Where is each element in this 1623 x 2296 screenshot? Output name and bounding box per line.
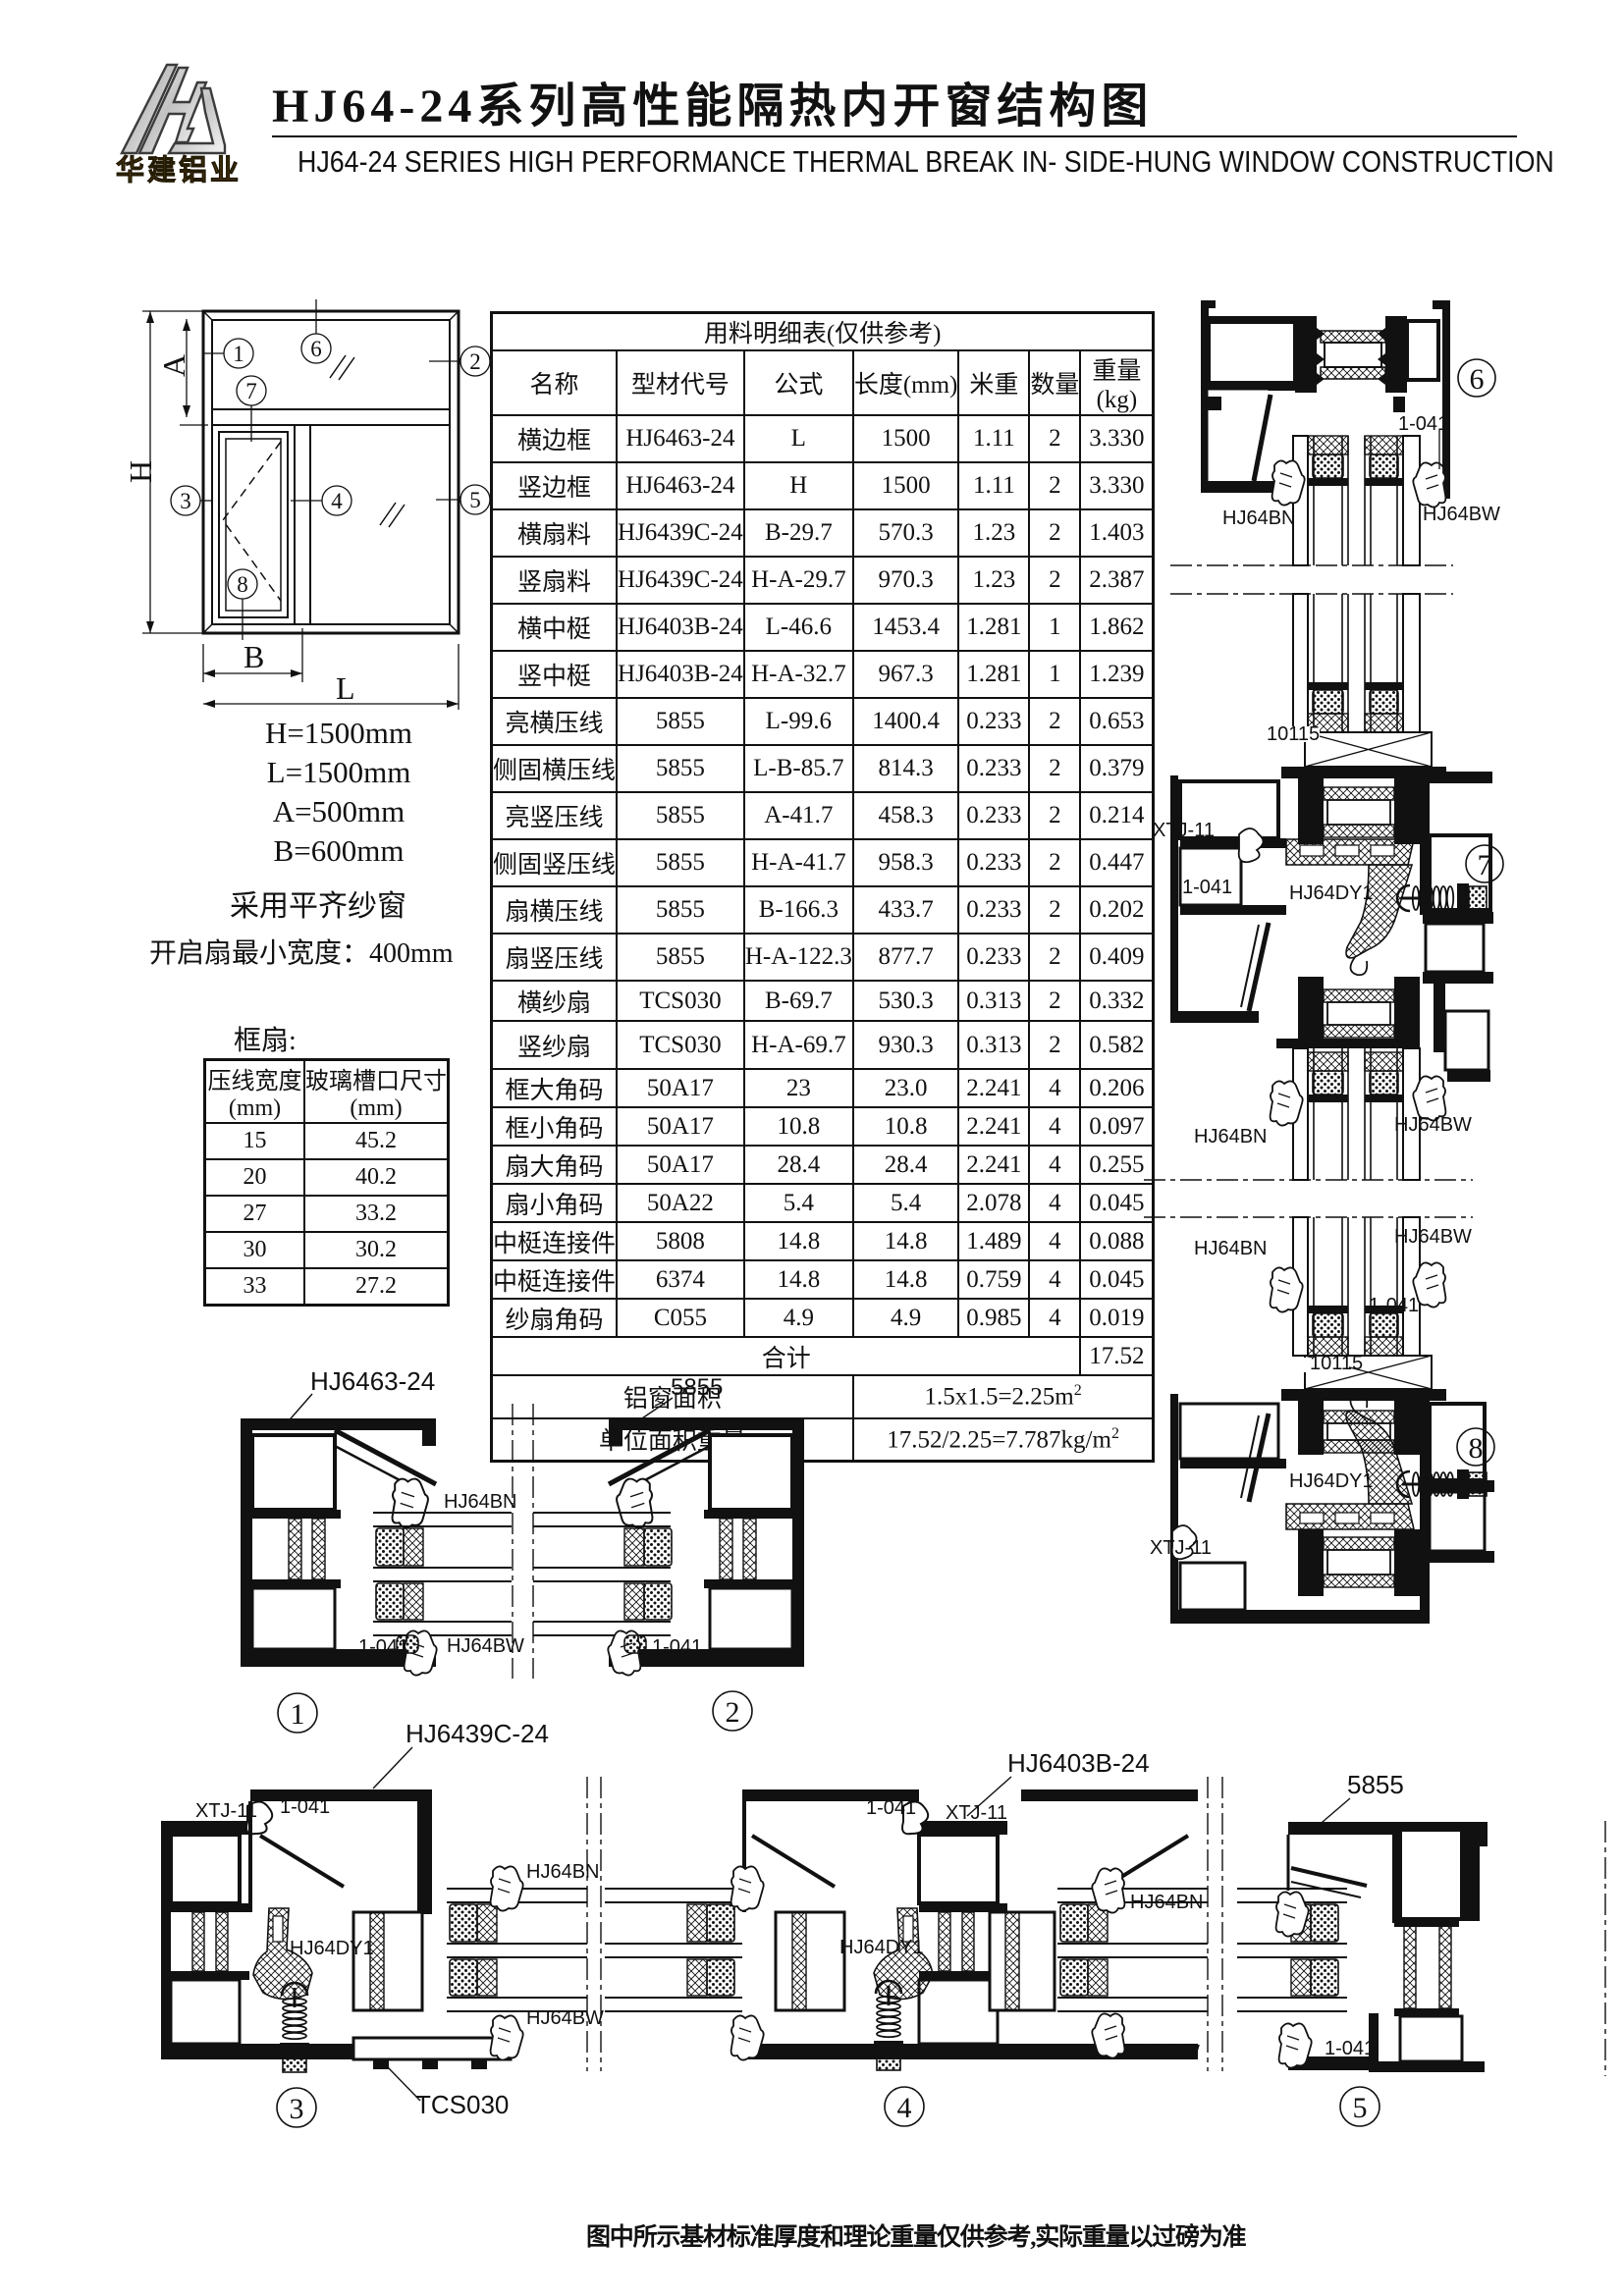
svg-text:HJ64BN: HJ64BN (1194, 1126, 1267, 1148)
svg-text:XTJ-11: XTJ-11 (946, 1802, 1007, 1824)
svg-text:HJ6439C-24: HJ6439C-24 (406, 1719, 549, 1748)
svg-text:1-041: 1-041 (1369, 1295, 1419, 1316)
svg-text:HJ64BN: HJ64BN (526, 1861, 599, 1883)
svg-text:7: 7 (1478, 849, 1492, 881)
svg-text:1: 1 (291, 1698, 305, 1731)
svg-text:1-041: 1-041 (280, 1796, 330, 1818)
svg-text:HJ64BW: HJ64BW (526, 2007, 604, 2029)
svg-text:HJ64DY1: HJ64DY1 (839, 1937, 924, 1958)
svg-text:TCS030: TCS030 (415, 2090, 509, 2119)
svg-text:1-041: 1-041 (866, 1797, 916, 1819)
svg-text:HJ6463-24: HJ6463-24 (310, 1366, 435, 1396)
svg-text:HJ64BN: HJ64BN (1222, 507, 1295, 529)
svg-text:1-041: 1-041 (652, 1636, 702, 1658)
svg-text:XTJ-11: XTJ-11 (1150, 1537, 1212, 1559)
svg-text:3: 3 (290, 2093, 304, 2125)
svg-text:HJ64BN: HJ64BN (1130, 1892, 1203, 1913)
svg-text:5: 5 (1353, 2092, 1368, 2124)
svg-text:XTJ-11: XTJ-11 (1153, 820, 1215, 841)
svg-text:HJ64DY1: HJ64DY1 (1289, 1470, 1374, 1492)
svg-text:4: 4 (897, 2092, 912, 2124)
svg-text:HJ64BW: HJ64BW (1394, 1226, 1472, 1248)
svg-text:HJ64BW: HJ64BW (1122, 2042, 1200, 2063)
svg-text:1-041: 1-041 (1182, 877, 1232, 898)
svg-text:HJ64DY1: HJ64DY1 (290, 1938, 374, 1959)
svg-text:2: 2 (726, 1696, 740, 1729)
svg-text:HJ64BN: HJ64BN (444, 1491, 516, 1513)
svg-text:XTJ-11: XTJ-11 (195, 1800, 257, 1822)
svg-text:HJ64BW: HJ64BW (1394, 1114, 1472, 1136)
svg-text:HJ64BW: HJ64BW (1423, 504, 1500, 525)
svg-text:5855: 5855 (1347, 1770, 1404, 1799)
svg-text:6: 6 (1470, 363, 1485, 396)
svg-text:HJ6403B-24: HJ6403B-24 (1007, 1748, 1150, 1778)
svg-text:10115: 10115 (1310, 1353, 1363, 1374)
svg-text:5855: 5855 (671, 1374, 723, 1401)
svg-text:8: 8 (1469, 1432, 1484, 1465)
svg-text:10115: 10115 (1267, 723, 1320, 745)
svg-text:HJ64DY1: HJ64DY1 (1289, 882, 1374, 904)
svg-text:1-041: 1-041 (1398, 413, 1448, 435)
svg-text:1-041: 1-041 (1325, 2038, 1375, 2059)
svg-text:1-041: 1-041 (358, 1636, 408, 1658)
svg-text:HJ64BN: HJ64BN (1194, 1238, 1267, 1259)
